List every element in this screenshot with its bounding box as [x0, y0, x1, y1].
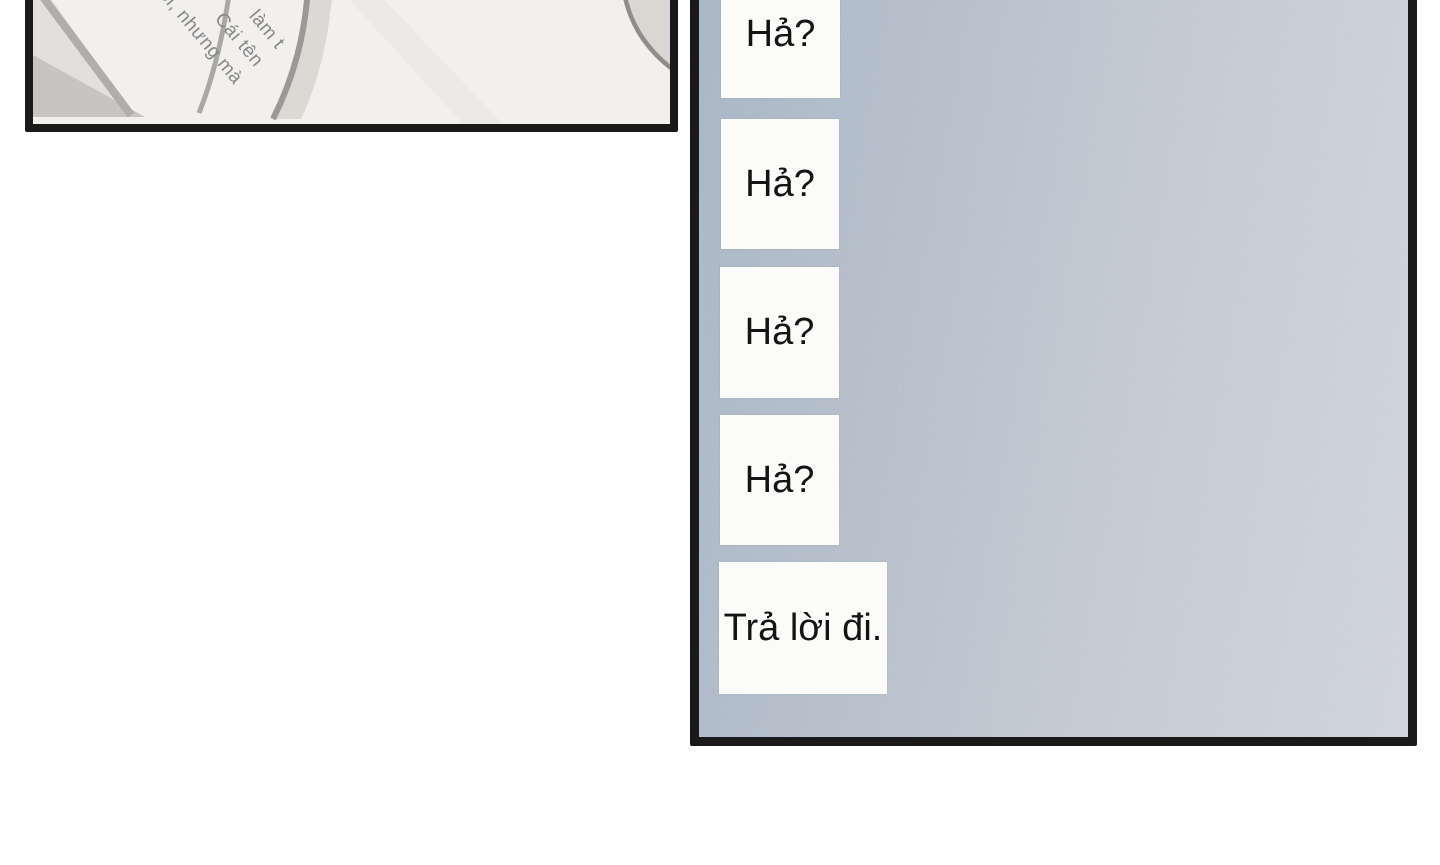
speech-text: Hả?: [745, 311, 815, 354]
speech-text: Hả?: [745, 163, 815, 206]
comic-panel-main: Hả? Hả? Hả? Hả? Trả lời đi.: [690, 0, 1417, 746]
speech-bubble: Trả lời đi.: [719, 562, 887, 694]
speech-text: Trả lời đi.: [724, 607, 883, 650]
speech-text: Hả?: [745, 459, 815, 502]
speech-bubble: Hả?: [720, 267, 839, 398]
speech-text: Hả?: [746, 13, 816, 56]
comic-page: làm t Cái tên ồi, nhưng mà Hả? Hả? Hả? H…: [0, 0, 1440, 865]
speech-bubble: Hả?: [720, 415, 839, 545]
panel-artwork: [33, 0, 670, 124]
speech-bubble: Hả?: [721, 0, 840, 98]
speech-bubble: Hả?: [721, 119, 839, 249]
comic-panel-partial: làm t Cái tên ồi, nhưng mà: [25, 0, 678, 132]
